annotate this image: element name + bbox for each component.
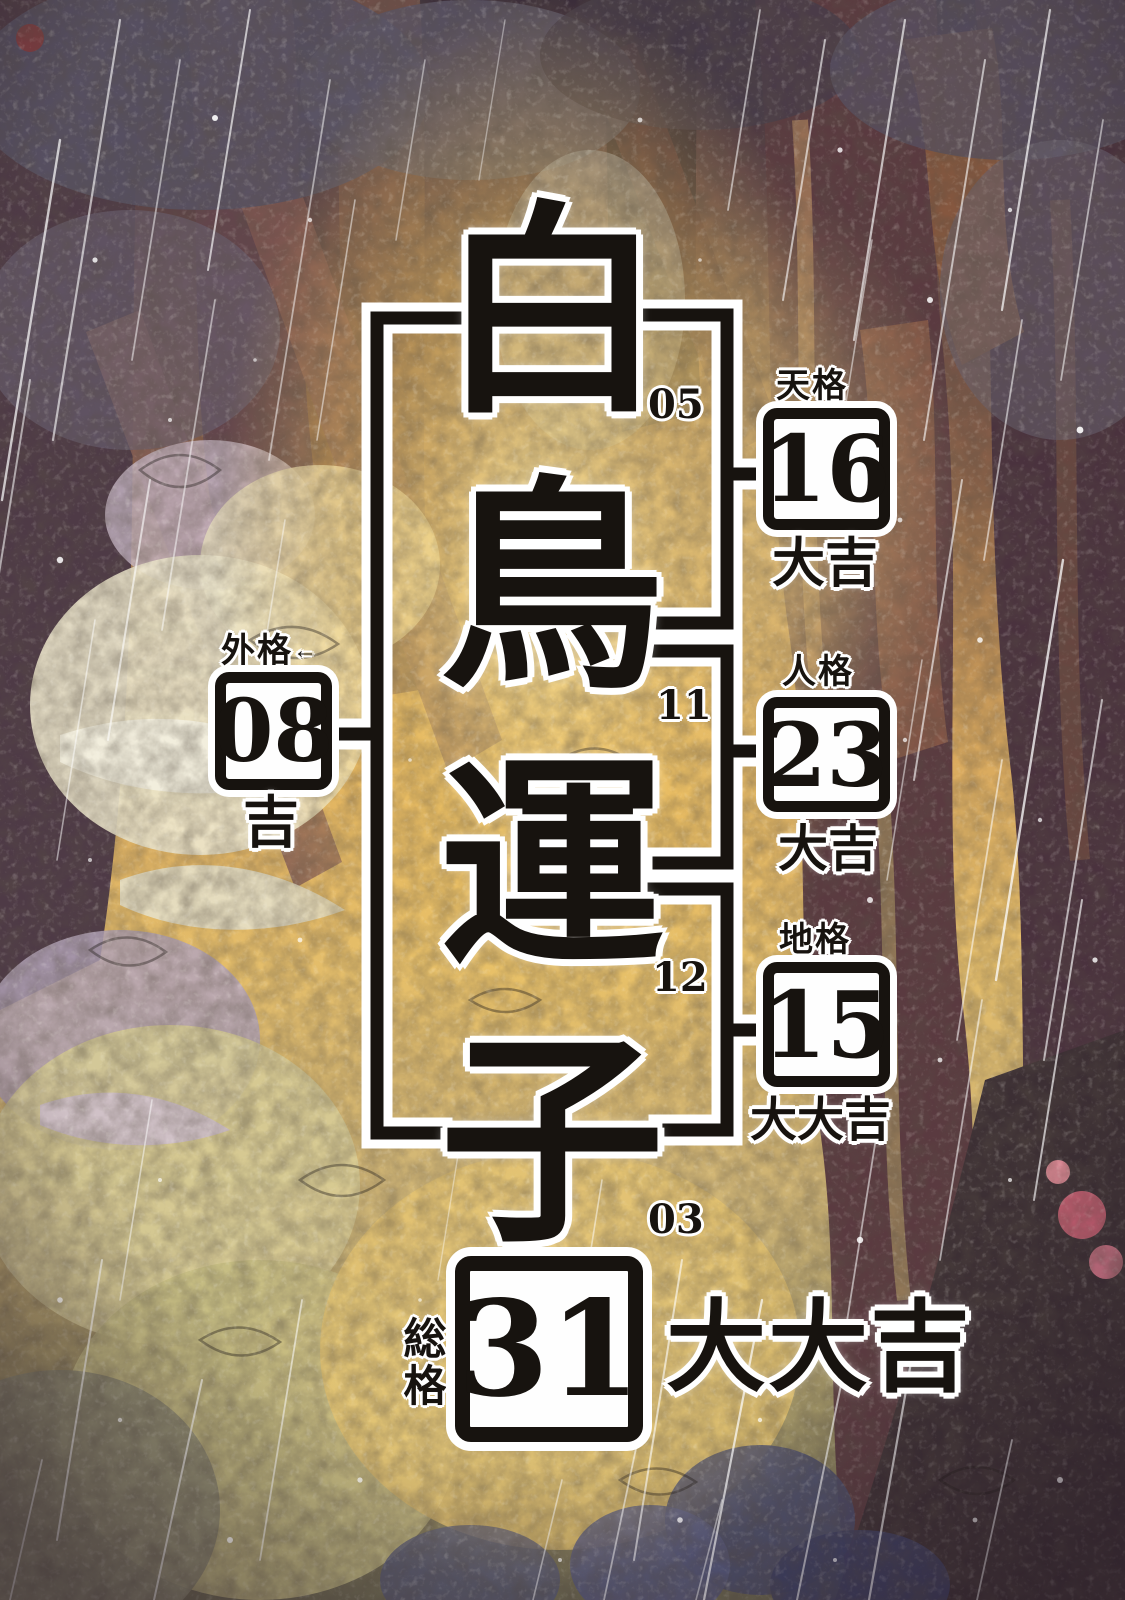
tenkaku-verdict: 大吉 xyxy=(772,538,878,591)
gaikaku-verdict: 吉 xyxy=(243,796,299,852)
name-character-2: 鳥 xyxy=(437,478,667,703)
name-character-4: 子 xyxy=(437,1032,667,1257)
jinkaku-value-box: 23 xyxy=(763,697,890,812)
name-character-3: 運 xyxy=(437,757,667,982)
soukaku-value: 31 xyxy=(457,1272,641,1427)
stroke-count-char-4: 03 xyxy=(648,1200,704,1240)
gaikaku-label-text: 外格 xyxy=(221,633,293,670)
tenkaku-label: 天格 xyxy=(776,370,848,404)
gaikaku-arrow-icon: ← xyxy=(293,638,317,664)
stroke-count-char-1: 05 xyxy=(648,385,704,425)
soukaku-verdict: 大大吉 xyxy=(666,1296,972,1402)
name-character-1: 白 xyxy=(437,203,667,428)
stroke-count-char-2: 11 xyxy=(656,686,712,726)
jinkaku-value: 23 xyxy=(765,703,887,807)
gaikaku-value-box: 08 xyxy=(215,672,332,790)
soukaku-label: 総格 xyxy=(397,1316,443,1410)
gaikaku-value: 08 xyxy=(214,681,334,782)
stroke-count-char-3: 12 xyxy=(652,958,708,998)
gaikaku-label: 外格← xyxy=(221,634,317,669)
tenkaku-value: 16 xyxy=(762,415,890,523)
jinkaku-label: 人格 xyxy=(782,656,854,690)
soukaku-value-box: 31 xyxy=(455,1256,643,1442)
tenkaku-value-box: 16 xyxy=(763,408,890,530)
chikaku-value: 15 xyxy=(762,971,890,1079)
manga-page: 白 鳥 運 子 05 11 12 03 天格 16 大吉 人格 23 大吉 地格… xyxy=(0,0,1125,1600)
chikaku-label: 地格 xyxy=(779,924,851,958)
jinkaku-verdict: 大吉 xyxy=(778,824,878,874)
chikaku-value-box: 15 xyxy=(763,962,890,1087)
chikaku-verdict: 大大吉 xyxy=(750,1098,891,1145)
